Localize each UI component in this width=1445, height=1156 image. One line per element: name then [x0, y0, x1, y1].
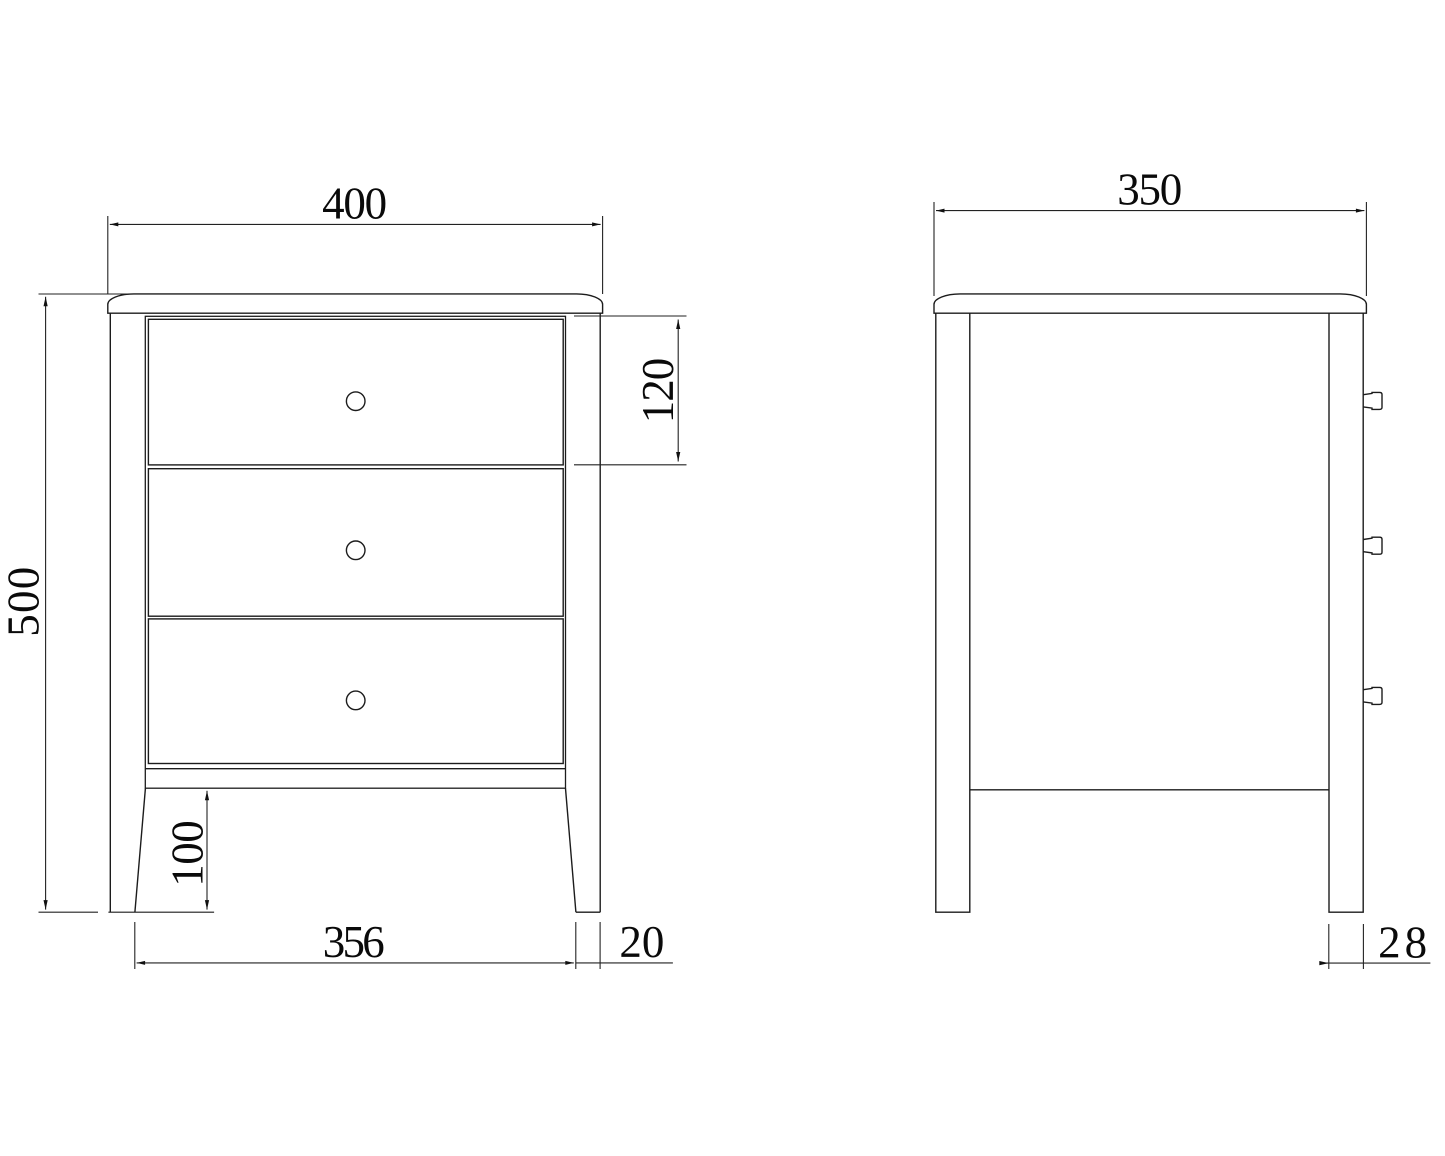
svg-text:356: 356	[323, 917, 385, 967]
svg-text:100: 100	[162, 820, 212, 887]
svg-text:350: 350	[1117, 165, 1182, 215]
svg-text:20: 20	[619, 917, 664, 967]
svg-text:500: 500	[0, 567, 49, 637]
svg-text:120: 120	[633, 358, 683, 424]
svg-text:400: 400	[322, 178, 387, 228]
